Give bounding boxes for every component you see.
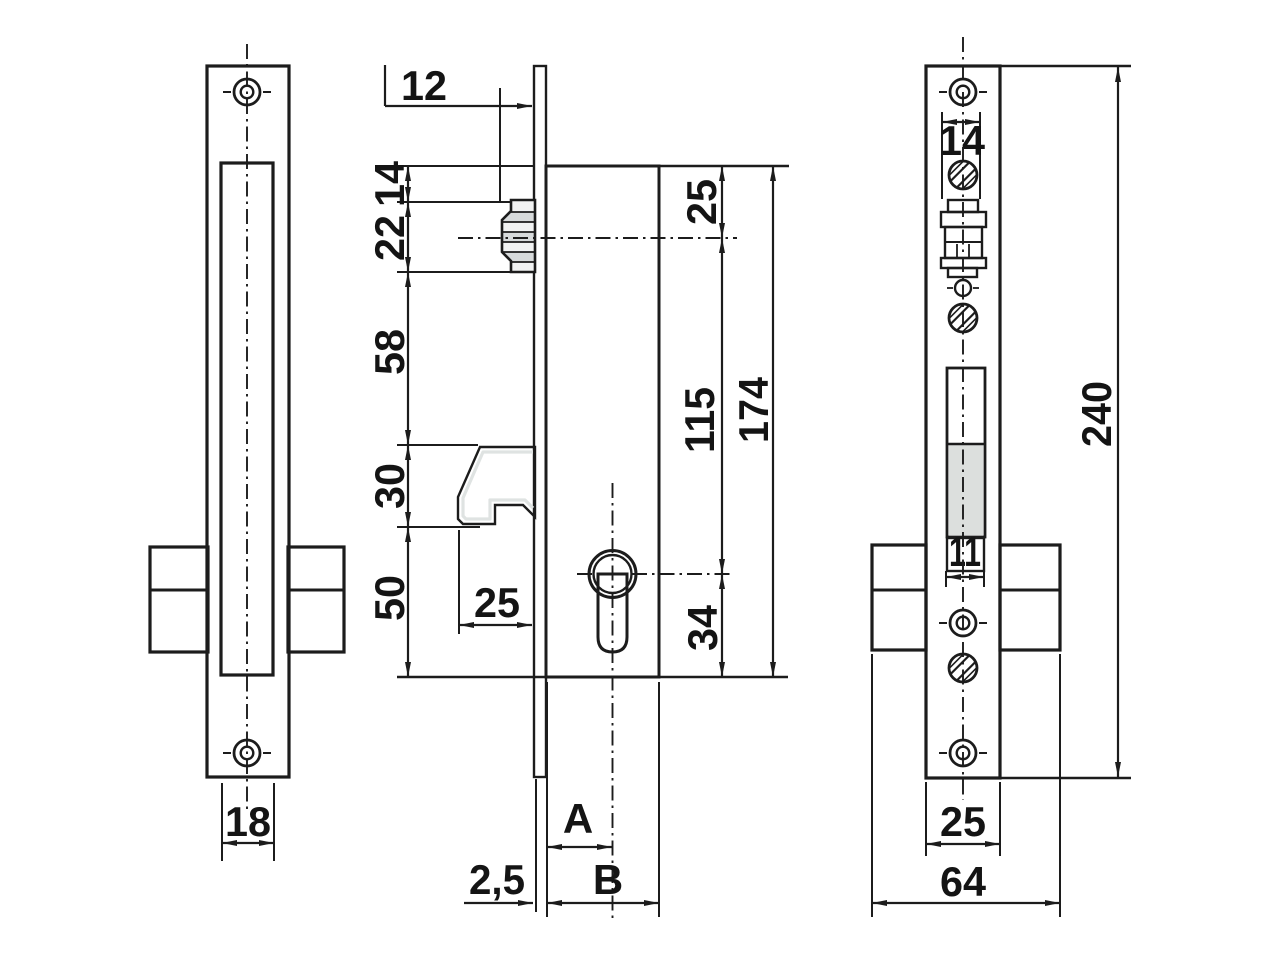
dim-label-A: A [563,795,593,842]
dim-label-174: 174 [730,376,777,443]
dim-label-22: 22 [366,215,413,261]
dim-label-30: 30 [366,463,413,509]
dimension-64: 64 [872,654,1060,917]
faceplate-front [207,66,289,777]
right-view: 14 11 [872,37,1131,917]
dimension-25-hook: 25 [459,530,532,634]
dimension-11: 11 [946,528,984,587]
cross-block-left [150,547,208,652]
cross-block-right [288,547,344,652]
bottom-dimensions: A B 2,5 [464,682,659,917]
dim-label-B: B [593,856,623,903]
lock-body [546,166,659,677]
dim-label-2-5: 2,5 [469,856,525,903]
roller-bolt-side [500,198,537,274]
cross-block-left [872,545,926,650]
dimension-18: 18 [222,783,274,861]
cross-block-right [1000,545,1060,650]
dim-label-25-top: 25 [678,179,725,225]
hook-bolt [458,447,535,524]
dim-label-25-hook: 25 [474,579,520,626]
dim-label-34: 34 [679,604,726,651]
dim-label-64: 64 [940,858,987,905]
dim-label-18: 18 [225,798,271,845]
lock-technical-drawing: 18 [0,0,1280,960]
slot-lower [949,444,983,535]
dim-label-25: 25 [940,798,986,845]
dim-label-58: 58 [366,329,413,375]
slot-opening [947,368,985,537]
right-dimension-chain: 25 115 34 174 [676,166,777,677]
dim-label-240: 240 [1073,381,1120,447]
faceplate-edge [534,66,546,777]
middle-view: 12 14 22 58 30 50 25 [366,62,789,921]
roller-stripes [500,198,537,274]
dim-label-11: 11 [949,528,981,575]
drawing-svg: 18 [0,0,1280,960]
dim-label-14: 14 [366,160,413,207]
dim-label-12: 12 [401,62,447,109]
dimension-240: 240 [1000,66,1131,778]
dim-label-115: 115 [676,387,723,453]
dim-label-50: 50 [366,575,413,621]
left-view: 18 [150,44,344,861]
